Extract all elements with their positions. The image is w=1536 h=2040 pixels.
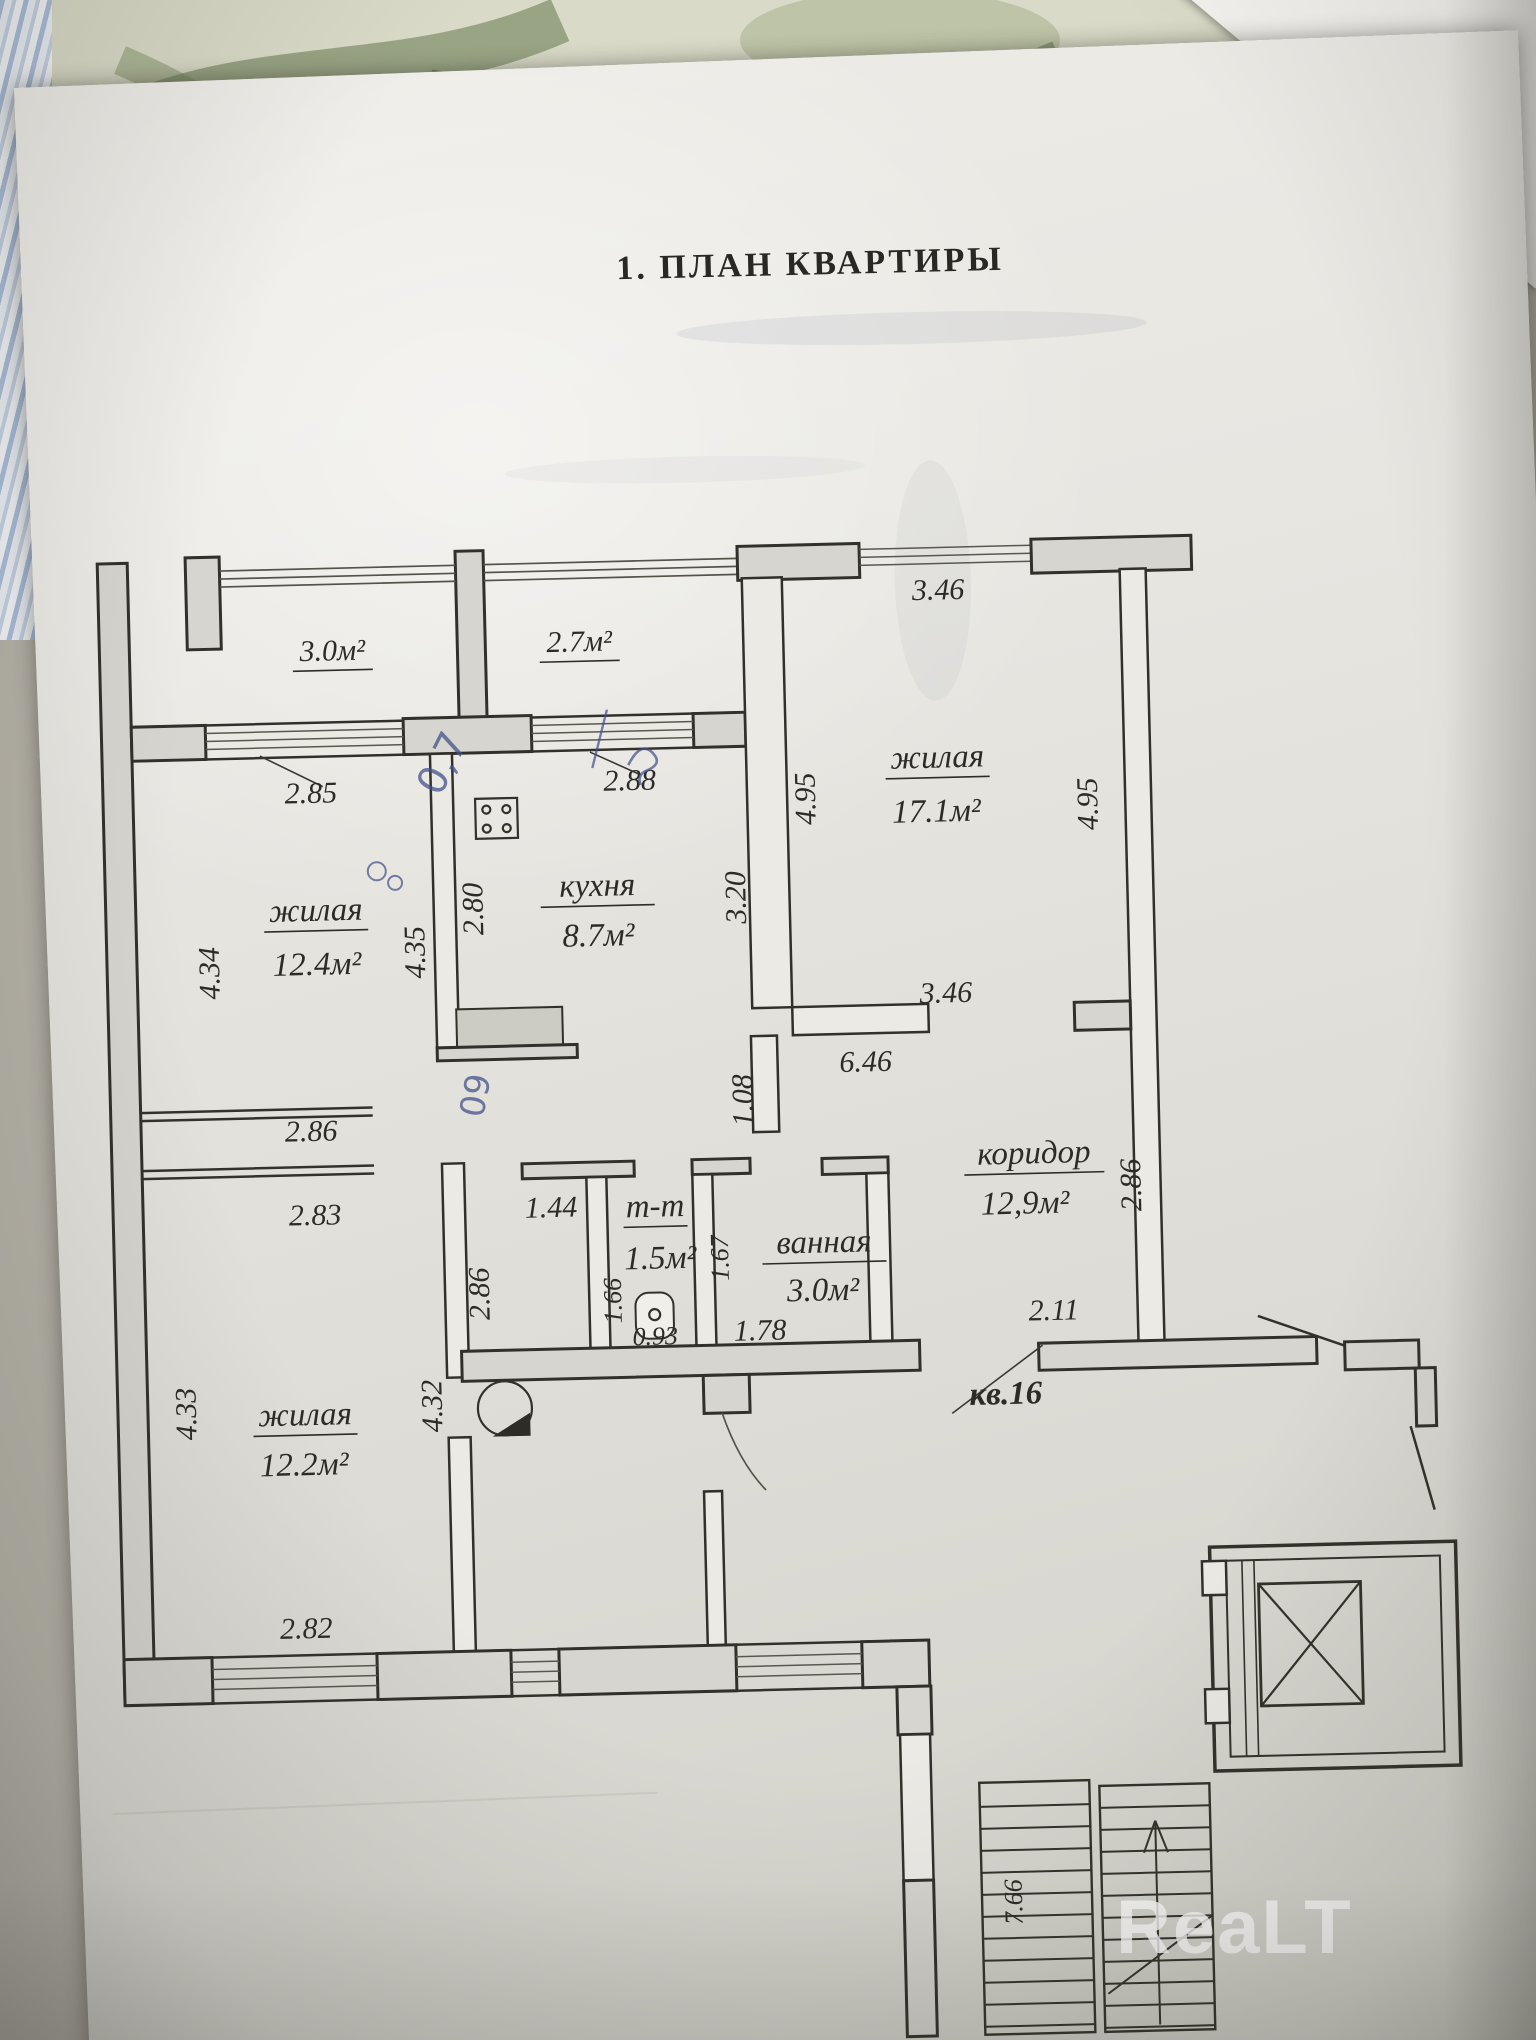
wall-toilet-header-right	[692, 1158, 750, 1174]
dim-corridor-right: 2.86	[1114, 1158, 1148, 1211]
wall-common-vertical	[704, 1491, 726, 1653]
dim-balcony-left-width: 2.85	[284, 776, 337, 810]
room-area-living122: 12.2м²	[259, 1446, 350, 1484]
dim-kitchen-right: 3.20	[719, 871, 753, 925]
wall-living122-right-lower	[449, 1437, 476, 1655]
wall-stair-corner	[897, 1686, 932, 1735]
elevator-car-icon	[1258, 1581, 1363, 1705]
dim-living17-bottom: 3.46	[918, 976, 972, 1010]
dim-living124-bottom: 2.86	[284, 1114, 337, 1148]
wall-corridor-top-block	[1074, 1001, 1131, 1030]
stove-icon	[475, 798, 518, 839]
pen-circle-2	[388, 876, 402, 890]
kitchen-counter	[456, 1007, 563, 1048]
wall-top-right-2	[1031, 535, 1192, 573]
wall-stair-lower	[904, 1880, 938, 2037]
room-label-corridor: коридор	[977, 1134, 1091, 1173]
room-area-living17: 17.1м²	[892, 793, 983, 831]
walls	[97, 528, 1451, 2040]
door-living122-icon	[477, 1381, 532, 1437]
wall-entry-block	[1345, 1340, 1420, 1370]
wall-kitchen-living17	[742, 577, 792, 1008]
dim-toilet-width: 0.93	[632, 1321, 678, 1351]
room-area-living124: 12.4м²	[272, 946, 363, 984]
wall-stair-upper	[900, 1734, 934, 1881]
dim-hall-width: 1.44	[524, 1191, 577, 1225]
dim-toilet-depth: 1.66	[598, 1278, 628, 1324]
pen-circle-1	[368, 862, 386, 880]
wall-corridor-top	[792, 1004, 929, 1035]
wall-common-stub	[703, 1374, 750, 1413]
pen-mark-2: 09	[452, 1071, 499, 1121]
wall-bathroom-header	[822, 1157, 888, 1175]
balcony-right-area: 2.7м²	[546, 624, 613, 659]
labels: 3.0м² 2.7м² 2.85 2.88 3.46 жилая 17.1м² …	[150, 569, 1166, 1945]
wall-living124-bottom	[141, 1107, 375, 1179]
dim-bathroom-left: 1.67	[705, 1234, 735, 1281]
plan-title: 1. ПЛАН КВАРТИРЫ	[616, 241, 1004, 287]
dim-living17-top: 3.46	[910, 573, 964, 607]
dim-living17-left: 4.95	[789, 772, 823, 825]
wall-kitchen-bottom	[437, 1044, 577, 1060]
wall-outer-right	[1120, 568, 1165, 1348]
room-area-toilet: 1.5м²	[624, 1240, 698, 1278]
dim-hall-left: 2.86	[463, 1267, 497, 1320]
floor-plan-photo: 1. ПЛАН КВАРТИРЫ	[0, 0, 1536, 2040]
apartment-number: кв.16	[969, 1375, 1043, 1413]
dim-corridor-length: 6.46	[839, 1045, 892, 1079]
dim-corridor-bottom: 2.11	[1028, 1293, 1079, 1327]
room-area-corridor: 12,9м²	[980, 1184, 1071, 1222]
common-door-arc	[722, 1412, 766, 1491]
balcony-left-area: 3.0м²	[298, 633, 366, 668]
realt-watermark: ReaLT	[1116, 1884, 1353, 1971]
wall-entry	[1039, 1336, 1318, 1370]
common-door-leaf	[1411, 1426, 1435, 1511]
room-label-kitchen: кухня	[559, 867, 636, 905]
floor-plan-drawing: 1. ПЛАН КВАРТИРЫ	[0, 0, 1536, 2040]
room-label-bathroom: ванная	[776, 1223, 872, 1261]
room-label-living124: жилая	[268, 892, 363, 930]
wall-top-right-1	[737, 543, 860, 580]
dim-living17-right: 4.95	[1071, 777, 1105, 830]
dim-living124-height: 4.34	[193, 947, 227, 1000]
dim-bathroom-width: 1.78	[733, 1313, 786, 1347]
dim-kitchen-left: 2.80	[456, 882, 490, 935]
wall-entry-post	[1415, 1368, 1436, 1426]
balcony-post-left	[185, 557, 221, 650]
wall-bottom	[124, 1640, 930, 1706]
room-label-toilet: т-т	[625, 1188, 685, 1225]
room-area-kitchen: 8.7м²	[562, 917, 636, 955]
dim-corridor-stub: 1.08	[726, 1074, 760, 1127]
room-label-living122: жилая	[258, 1396, 353, 1434]
paper-fold-line	[113, 1793, 658, 1814]
room-area-bathroom: 3.0м²	[786, 1272, 861, 1310]
wall-hall-bottom	[462, 1340, 921, 1381]
dim-stairs-flight: 7.66	[999, 1879, 1029, 1925]
dim-living122-bottom: 2.82	[280, 1612, 333, 1646]
dim-living122-right: 4.32	[415, 1379, 449, 1432]
elevator-shaft	[1202, 1541, 1461, 1771]
wall-toilet-header-left	[522, 1161, 634, 1179]
dim-living122-top: 2.83	[289, 1198, 342, 1232]
dim-living124-right: 4.35	[398, 926, 432, 979]
room-label-living17: жилая	[890, 738, 985, 776]
dim-living122-height: 4.33	[169, 1387, 203, 1440]
